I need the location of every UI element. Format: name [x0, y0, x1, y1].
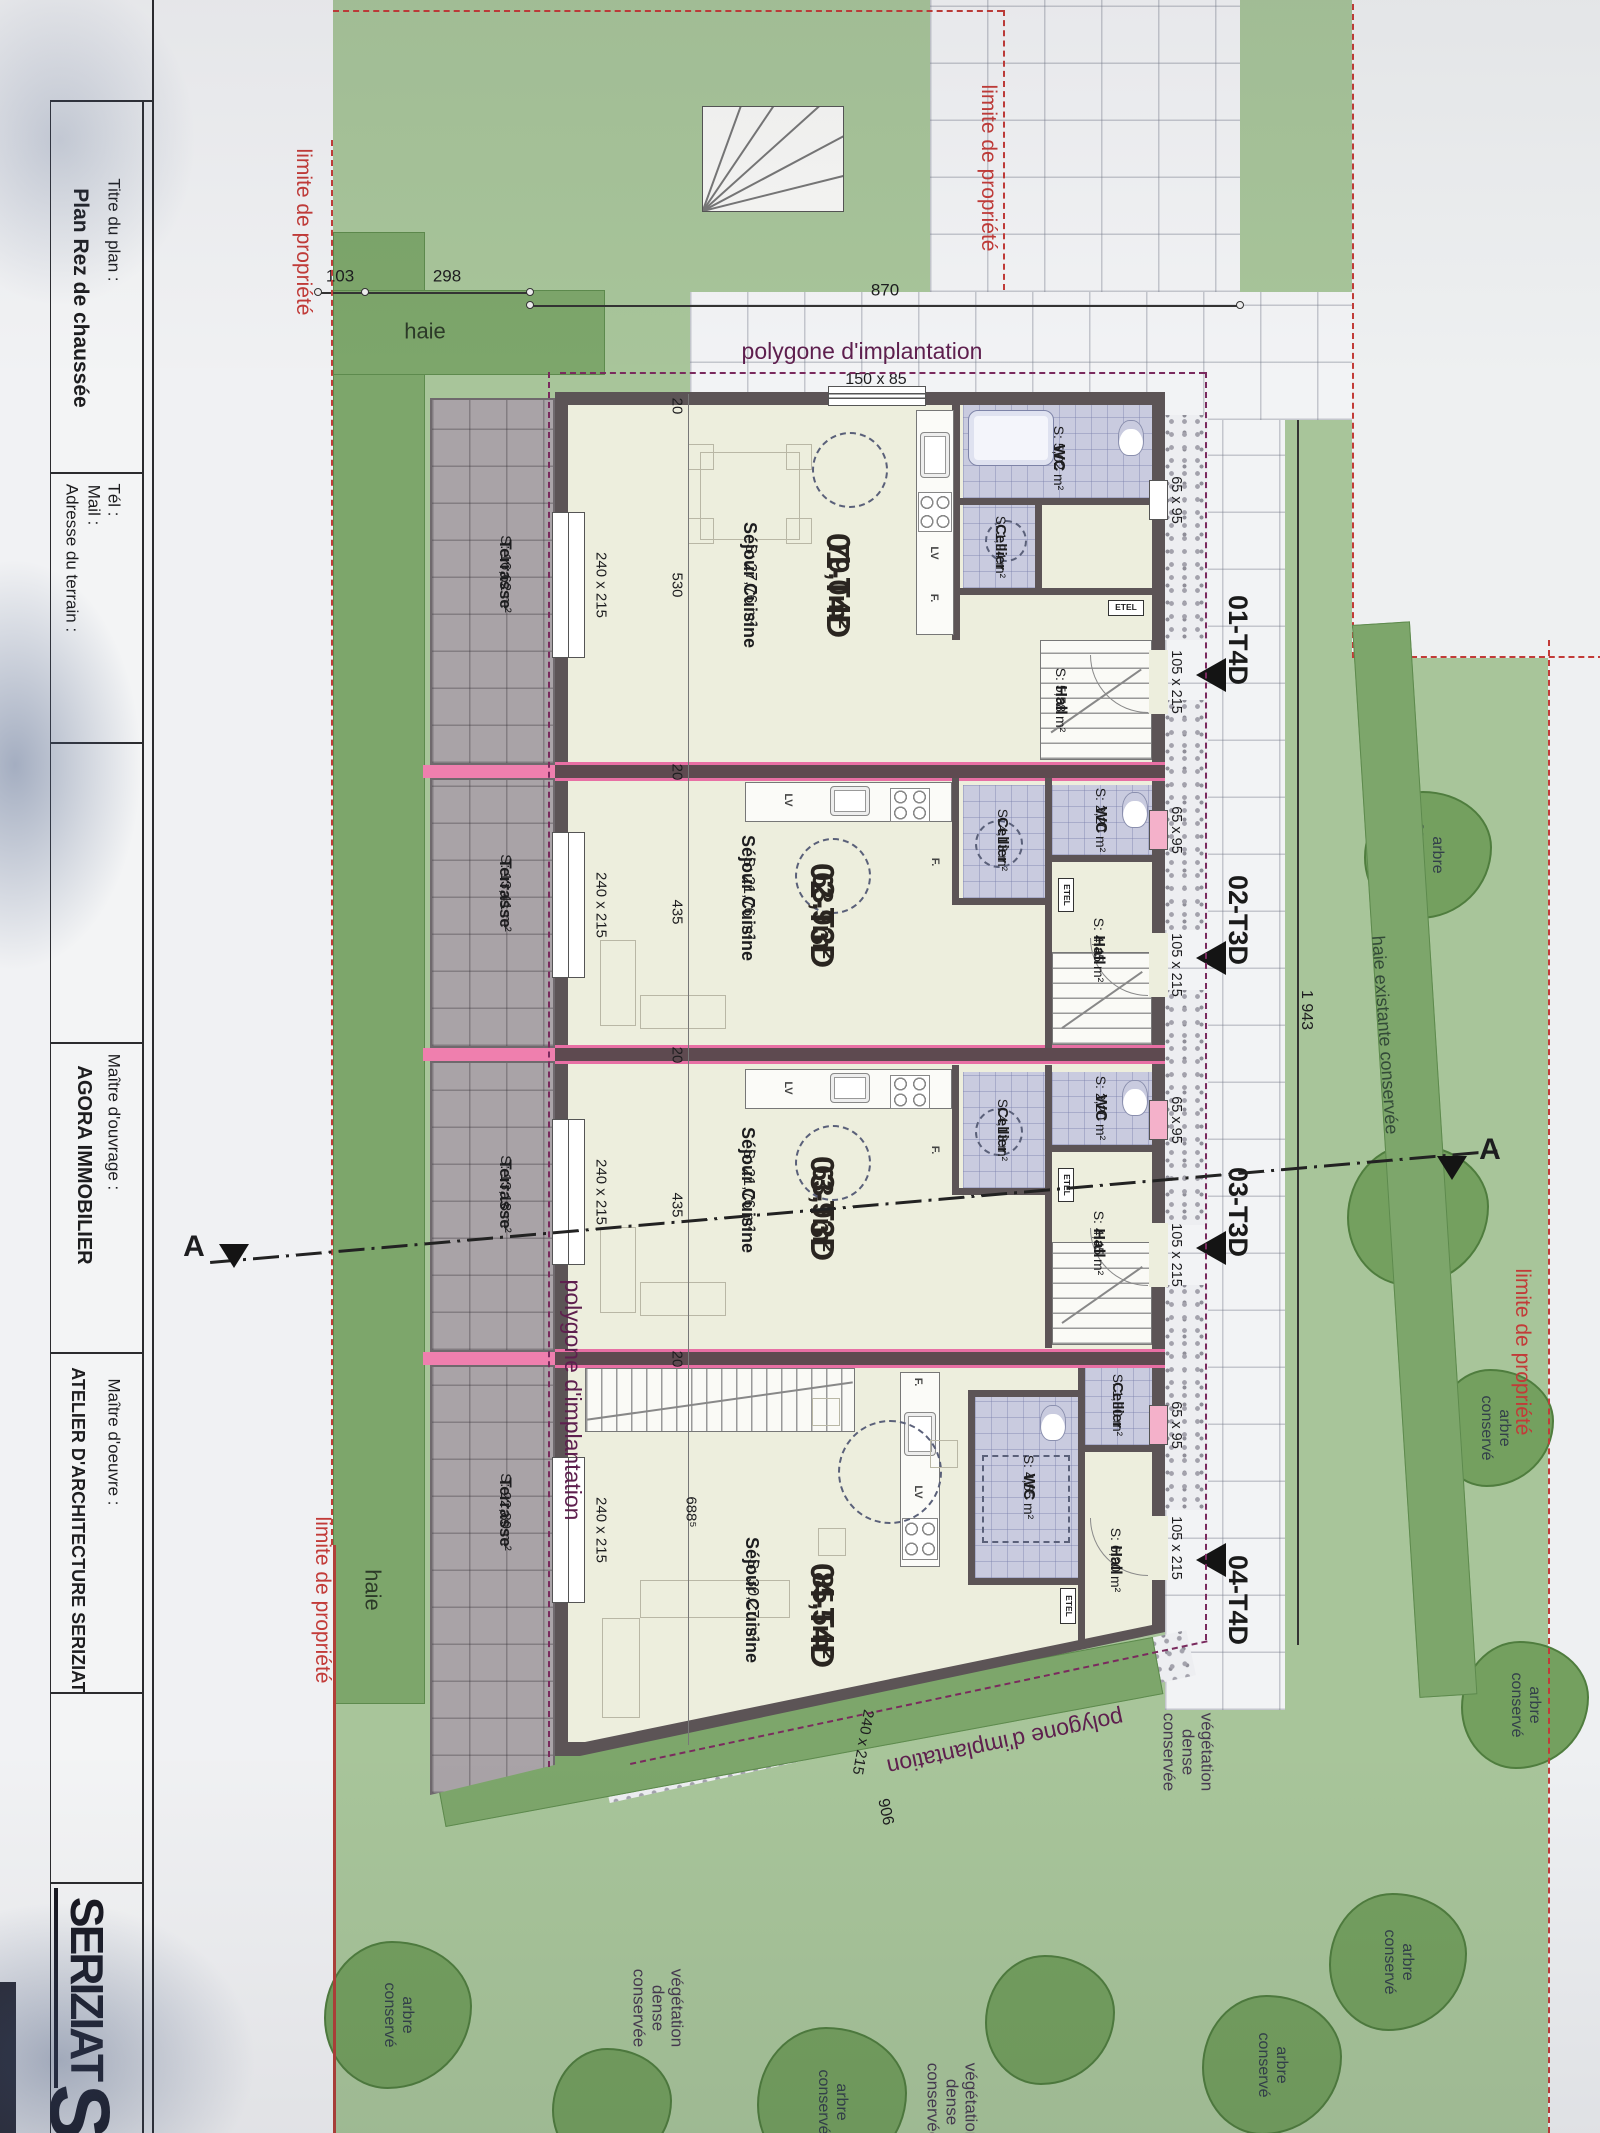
round-table-u4 — [838, 1420, 942, 1524]
dim-tick-4 — [1236, 301, 1244, 309]
titleblock-divider-3 — [50, 1352, 142, 1354]
limit-top-dashed — [333, 10, 1003, 12]
limit-topright-dashed — [1003, 10, 1005, 290]
entry-door-u1 — [1149, 650, 1168, 714]
dim-tick-2 — [526, 288, 534, 296]
party-wall-1 — [555, 1048, 1165, 1061]
chair-u1-0 — [688, 444, 714, 470]
front-window-u2 — [552, 832, 585, 978]
kitchen-hob-1 — [918, 492, 952, 532]
dim-tick-3 — [526, 301, 534, 309]
logo-underline — [54, 1888, 58, 2088]
dim-tick-1 — [361, 288, 369, 296]
polygon-line-right — [1205, 372, 1207, 1640]
driveway-paved — [930, 0, 1240, 292]
etel-box-4 — [1060, 1588, 1076, 1624]
top-window-u1 — [828, 386, 926, 406]
wet-room-6 — [1085, 1368, 1152, 1445]
partition-8 — [1045, 1065, 1052, 1348]
back-window-u2 — [1149, 810, 1168, 850]
partition-15 — [968, 1390, 975, 1585]
dim-line-top-2 — [530, 305, 1240, 307]
kitchen-hob-2 — [890, 788, 930, 822]
chair-u4-2 — [818, 1528, 846, 1556]
chair-u1-2 — [786, 444, 812, 470]
titleblock-bg — [50, 100, 142, 2133]
terrace-2 — [430, 778, 555, 1048]
limit-left-solid — [333, 1545, 336, 2133]
back-window-u1 — [1149, 480, 1168, 520]
terrace-1 — [430, 398, 555, 765]
exterior-stair — [702, 106, 844, 212]
logo-stamp — [0, 1982, 16, 2133]
terrace-4 — [430, 1365, 555, 1795]
terrace-party-pink-1 — [423, 1048, 558, 1061]
titleblock-divider-1 — [50, 742, 142, 744]
titleblock-divider-2 — [50, 1042, 142, 1044]
sofa-u2-b — [640, 995, 726, 1029]
round-table-u1 — [812, 432, 888, 508]
partition-14 — [968, 1390, 1078, 1397]
front-window-u1 — [552, 512, 585, 658]
hedge-west — [333, 232, 425, 1704]
back-window-u4 — [1149, 1405, 1168, 1445]
round-table-u3 — [795, 1125, 871, 1201]
toilet-u4 — [1040, 1405, 1066, 1441]
kitchen-sink-1 — [920, 432, 950, 478]
terrace-party-pink-0 — [423, 765, 558, 778]
partition-1 — [952, 498, 1152, 505]
entry-door-u4 — [1149, 1516, 1168, 1580]
titleblock-divider-5 — [50, 1882, 142, 1884]
section-arrow-right — [1437, 1156, 1467, 1180]
sofa-u4-b — [602, 1618, 640, 1718]
titleblock-divider-0 — [50, 472, 142, 474]
partition-11 — [952, 1065, 959, 1195]
chair-u4-0 — [812, 1398, 840, 1426]
partition-13 — [1078, 1445, 1152, 1452]
section-arrow-left — [219, 1244, 249, 1268]
partition-16 — [968, 1578, 1078, 1585]
back-window-u3 — [1149, 1100, 1168, 1140]
unit-tag-arrow-u4 — [1196, 1543, 1226, 1577]
entry-door-u3 — [1149, 1223, 1168, 1287]
etel-box-2 — [1058, 878, 1074, 912]
drawing-margin — [152, 0, 333, 2133]
sheet-top-line — [50, 100, 154, 102]
partition-4 — [1045, 778, 1052, 1048]
right-paper-margin — [1548, 640, 1600, 2133]
table-u1 — [700, 452, 800, 540]
front-window-u3 — [552, 1119, 585, 1265]
kitchen-hob-3 — [890, 1075, 930, 1109]
unit-tag-arrow-u1 — [1196, 658, 1226, 692]
stair-tread-line — [702, 106, 792, 211]
sofa-u3-a — [600, 1227, 636, 1313]
terrace-party-pink-2 — [423, 1352, 558, 1365]
limit-left-dashed — [331, 140, 333, 1545]
front-window-u4 — [552, 1457, 585, 1603]
polygon-line-top — [560, 372, 1205, 374]
partition-7 — [952, 778, 959, 905]
party-wall-0 — [555, 765, 1165, 778]
toilet-u1 — [1118, 420, 1144, 456]
partition-9 — [1045, 1145, 1152, 1152]
sofa-u3-b — [640, 1282, 726, 1316]
washer-u2 — [975, 820, 1023, 868]
party-wall-2 — [555, 1352, 1165, 1365]
partition-6 — [952, 898, 1052, 905]
kitchen-sink-2 — [830, 786, 870, 816]
etel-box-1 — [1108, 600, 1144, 616]
frame-line-inner — [142, 100, 144, 2133]
unit-tag-arrow-u3 — [1196, 1231, 1226, 1265]
terrace-3 — [430, 1061, 555, 1352]
sofa-u2-a — [600, 940, 636, 1026]
kitchen-hob-4 — [902, 1518, 938, 1560]
toilet-u2 — [1122, 792, 1148, 828]
chair-u1-1 — [688, 518, 714, 544]
dim-tick-0 — [314, 288, 322, 296]
round-table-u2 — [795, 838, 871, 914]
etel-box-3 — [1058, 1168, 1074, 1202]
partition-5 — [1045, 855, 1152, 862]
toilet-u3 — [1122, 1080, 1148, 1116]
titleblock-divider-4 — [50, 1692, 142, 1694]
polygon-line-left — [548, 372, 550, 1767]
washer-u1 — [985, 520, 1027, 562]
partition-2 — [952, 588, 1152, 595]
dim-line-top-1 — [318, 292, 530, 294]
dim-chain-interior — [688, 394, 689, 1745]
site-plan-photo: haiehaiehaie1032988701 943TerrasseS: 16,… — [0, 0, 1600, 2133]
frame-line-outer — [152, 0, 154, 2133]
dim-line-1943 — [1297, 420, 1299, 1645]
sofa-u4-a — [640, 1580, 790, 1618]
shower-u4 — [982, 1455, 1070, 1543]
unit-tag-arrow-u2 — [1196, 941, 1226, 975]
hedge-north — [333, 290, 605, 375]
partition-3 — [1035, 498, 1042, 595]
bathtub-u1 — [968, 410, 1054, 466]
partition-12 — [1078, 1368, 1085, 1648]
kitchen-sink-3 — [830, 1073, 870, 1103]
washer-u3 — [975, 1108, 1023, 1156]
entry-door-u2 — [1149, 933, 1168, 997]
chair-u1-3 — [786, 518, 812, 544]
chair-u4-1 — [930, 1440, 958, 1468]
neighbor-plot — [1352, 0, 1600, 658]
limit-right-dashed — [1548, 640, 1550, 2133]
